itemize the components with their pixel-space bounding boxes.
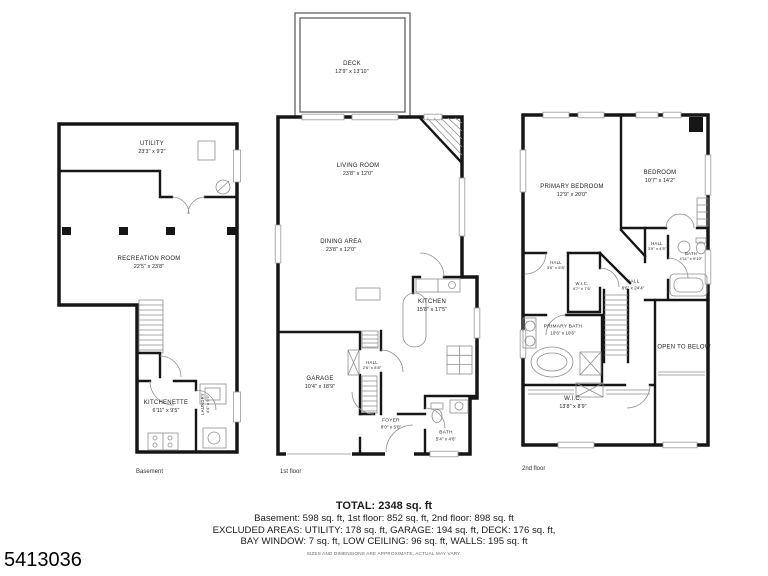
upper-bath-fixtures xyxy=(670,238,707,296)
room-label-bath-1f: BATH 5'4" x 4'6" xyxy=(436,430,456,441)
window xyxy=(663,442,697,448)
room-label-open-to-below: OPEN TO BELOW xyxy=(657,344,710,351)
window xyxy=(543,112,569,118)
room-label-wic-large: W.I.C. 13'8" x 8'9" xyxy=(559,396,586,410)
floorplan-page: UTILITY 23'3" x 9'2" RECREATION ROOM 22'… xyxy=(0,0,768,576)
first-floor-plan xyxy=(275,13,480,457)
window xyxy=(302,114,344,120)
hall-closet xyxy=(348,350,359,375)
closet-door-arc xyxy=(160,356,181,377)
window xyxy=(474,308,480,338)
room-label-primary-bedroom: PRIMARY BEDROOM 12'9" x 20'0" xyxy=(540,184,604,198)
room-label-hall-left: HALL 3'6" x 5'8" xyxy=(547,261,566,271)
hall-stairs-lower xyxy=(362,376,377,413)
utility-walls xyxy=(59,171,237,197)
diagonal-hall-walls xyxy=(600,230,645,283)
primary-bedroom-door-arc xyxy=(525,253,546,274)
bedroom-closet xyxy=(666,198,708,228)
room-label-bedroom: BEDROOM 10'7" x 14'2" xyxy=(644,170,677,184)
window xyxy=(424,114,442,120)
room-label-hall-small: HALL 3'9" x 4'5" xyxy=(648,242,667,252)
open-to-below-rail xyxy=(658,372,705,375)
room-label-utility: UTILITY 23'3" x 9'2" xyxy=(138,141,165,155)
room-label-foyer: FOYER 8'0" x 5'0" xyxy=(381,418,401,429)
window xyxy=(430,451,458,457)
laundry-window xyxy=(234,392,241,422)
window xyxy=(578,112,604,118)
area-summary: TOTAL: 2348 sq. ft Basement: 598 sq. ft,… xyxy=(0,500,768,556)
deck-door xyxy=(352,114,398,120)
room-label-laundry: LAUNDRY 4'4" x 9'5" xyxy=(201,393,211,415)
basement-stairs xyxy=(139,300,163,353)
room-label-dining-area: DINING AREA 23'8" x 12'0" xyxy=(320,239,361,253)
window xyxy=(275,225,281,263)
excluded-areas-line2: BAY WINDOW: 7 sq. ft, LOW CEILING: 96 sq… xyxy=(0,536,768,548)
basement-window xyxy=(234,150,241,182)
window xyxy=(705,250,711,284)
room-label-recreation: RECREATION ROOM 22'5" x 23'8" xyxy=(118,256,181,270)
room-label-hall-main: HALL 8'6" x 24'4" xyxy=(622,279,645,290)
chimney xyxy=(689,117,703,132)
hall-stairs-upper xyxy=(362,331,378,348)
window xyxy=(459,178,465,236)
kitchen-counter xyxy=(416,279,460,292)
second-floor-plan xyxy=(520,112,711,448)
room-label-bath-2f: BATH 4'11" x 9'10" xyxy=(680,252,703,262)
window xyxy=(520,150,526,192)
window xyxy=(705,155,711,195)
kitchen-door-arc xyxy=(420,253,444,277)
kitchenette-stove xyxy=(148,433,178,450)
caption-second-floor: 2nd floor xyxy=(522,466,545,472)
room-label-living-room: LIVING ROOM 23'8" x 12'0" xyxy=(337,163,380,177)
hall-foyer-walls xyxy=(360,331,425,414)
water-heater xyxy=(198,141,215,160)
room-label-wic-small: W.I.C. 4'7" x 7'6" xyxy=(573,282,592,292)
second-floor-outline xyxy=(523,115,708,445)
window-seat xyxy=(356,288,380,300)
basement-columns xyxy=(62,227,237,235)
room-label-primary-bath: PRIMARY BATH 10'6" x 10'6" xyxy=(544,324,582,335)
window xyxy=(663,112,681,118)
caption-first-floor: 1st floor xyxy=(280,469,301,475)
room-label-garage: GARAGE 10'4" x 18'9" xyxy=(305,376,335,390)
room-label-kitchenette: KITCHENETTE 6'11" x 9'5" xyxy=(144,400,188,414)
room-label-deck: DECK 12'9" x 13'10" xyxy=(335,61,368,75)
stair-closet-walls xyxy=(139,353,160,377)
kitchen-cabinets xyxy=(447,346,472,374)
utility-double-door xyxy=(172,197,205,214)
window xyxy=(636,112,658,118)
corner-stairs xyxy=(420,118,462,163)
floorplan-drawing xyxy=(0,0,768,576)
listing-id: 5413036 xyxy=(4,549,82,572)
disclaimer: SIZES AND DIMENSIONS ARE APPROXIMATE, AC… xyxy=(0,551,768,556)
kitchenette-walls xyxy=(137,381,196,452)
front-door-opening xyxy=(385,451,414,457)
window xyxy=(558,442,594,448)
excluded-areas-line1: EXCLUDED AREAS: UTILITY: 178 sq. ft, GAR… xyxy=(0,525,768,537)
primary-bath-walls xyxy=(523,300,655,445)
caption-basement: Basement xyxy=(136,469,163,475)
room-label-hall-1f: HALL 2'6" x 8'8" xyxy=(363,361,382,371)
floor-areas: Basement: 598 sq. ft, 1st floor: 852 sq.… xyxy=(0,513,768,525)
wic-small-door-arc xyxy=(600,268,619,287)
total-area: TOTAL: 2348 sq. ft xyxy=(0,500,768,512)
room-label-kitchen: KITCHEN 15'8" x 17'5" xyxy=(417,299,447,313)
stairwell xyxy=(604,290,628,362)
